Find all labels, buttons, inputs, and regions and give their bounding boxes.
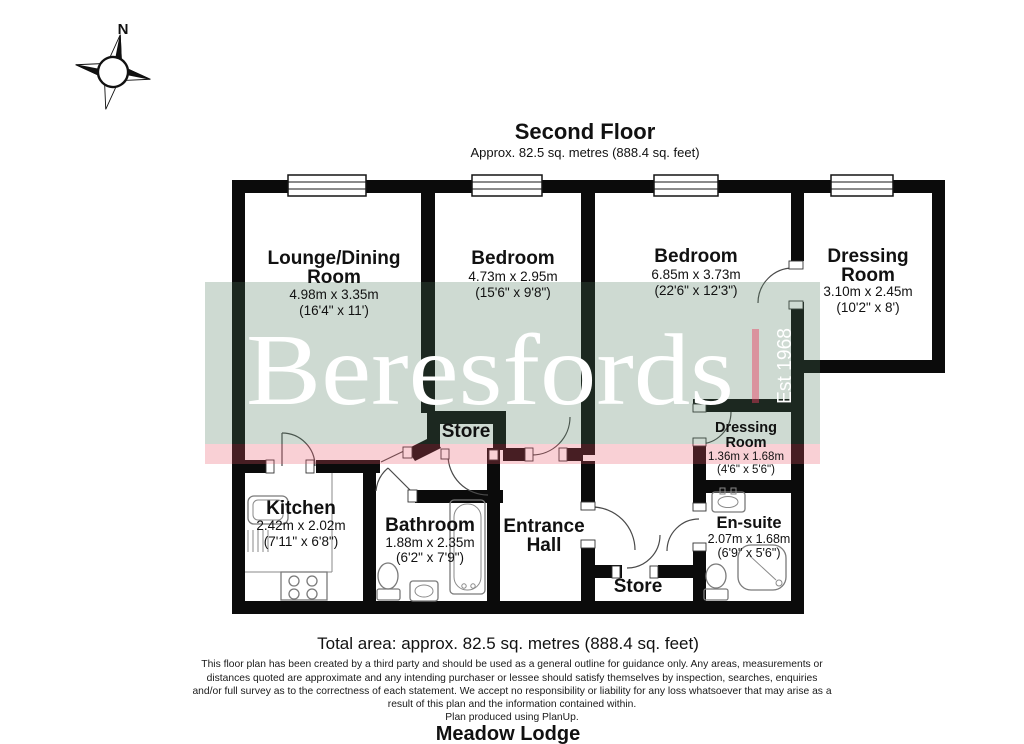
label-dressing-large-imperial: (10'2" x 8')	[836, 300, 899, 315]
label-dressing-large-name2: Room	[841, 265, 895, 286]
wall-bottom-exterior	[232, 601, 804, 614]
watermark-est-text: Est 1968	[774, 328, 796, 404]
label-bedroom2-name: Bedroom	[654, 246, 737, 267]
window-lounge	[288, 175, 366, 196]
disclaimer-line-3: and/or full survey as to the correctness…	[192, 686, 831, 697]
label-dressing-small-name1: Dressing	[715, 420, 777, 436]
label-dressing-small-metric: 1.36m x 1.68m	[708, 451, 784, 463]
label-bedroom2-imperial: (22'6" x 12'3")	[654, 283, 737, 298]
disclaimer-line-1: This floor plan has been created by a th…	[201, 659, 823, 670]
wall-bedroom2-dressing-upper	[791, 180, 804, 261]
bathroom-toilet	[378, 563, 398, 589]
kitchen-hob	[281, 572, 327, 600]
label-bathroom-imperial: (6'2" x 7'9")	[396, 550, 464, 565]
label-dressing-small-imperial: (4'6" x 5'6")	[717, 464, 775, 476]
disclaimer-line-2: distances quoted are approximate and any…	[207, 673, 818, 684]
label-ensuite-imperial: (6'9" x 5'6")	[718, 546, 781, 560]
disclaimer-line-4: result of this plan and the information …	[388, 699, 636, 710]
label-lounge-metric: 4.98m x 3.35m	[289, 287, 378, 302]
watermark-pink-bar	[752, 329, 759, 403]
wall-store-lower-left	[581, 578, 595, 604]
window-dressing-large	[831, 175, 893, 196]
label-kitchen-metric: 2.42m x 2.02m	[256, 518, 345, 533]
label-hall-name2: Hall	[527, 535, 562, 556]
label-bedroom1-name: Bedroom	[471, 248, 554, 269]
compass-circle	[95, 54, 130, 89]
label-dressing-large-metric: 3.10m x 2.45m	[823, 284, 912, 299]
label-store-lower: Store	[614, 576, 663, 597]
label-lounge-name2: Room	[307, 267, 361, 288]
disclaimer: This floor plan has been created by a th…	[192, 659, 831, 723]
label-dressing-large-name1: Dressing	[827, 246, 908, 267]
door-arc-store-lower	[627, 535, 660, 568]
total-area-text: Total area: approx. 82.5 sq. metres (888…	[317, 634, 699, 653]
label-lounge-imperial: (16'4" x 11')	[299, 303, 369, 318]
label-bathroom-metric: 1.88m x 2.35m	[385, 535, 474, 550]
wall-right-upper-exterior	[932, 180, 945, 373]
door-arc-bedroom2-hall	[592, 507, 635, 550]
label-ensuite-metric: 2.07m x 1.68m	[708, 532, 791, 546]
ensuite-toilet	[706, 564, 726, 588]
label-store-upper: Store	[442, 421, 491, 442]
page-title: Second Floor	[515, 119, 656, 144]
label-bedroom1-metric: 4.73m x 2.95m	[468, 269, 557, 284]
floorplan-canvas: Beresfords Est 1968 N Second Floor Appro…	[0, 0, 1024, 744]
wall-kitchen-bathroom-divider	[363, 460, 376, 614]
label-ensuite-name: En-suite	[716, 514, 781, 532]
door-leaf-bathroom	[388, 468, 412, 492]
wall-dressing-ensuite-divider	[706, 480, 791, 493]
label-hall-name1: Entrance	[503, 516, 584, 537]
label-lounge-name1: Lounge/Dining	[268, 248, 401, 269]
window-bedroom1	[472, 175, 542, 196]
bathroom-sink	[410, 581, 438, 601]
page-subtitle: Approx. 82.5 sq. metres (888.4 sq. feet)	[470, 145, 699, 160]
compass-north-label: N	[118, 21, 129, 38]
property-name: Meadow Lodge	[436, 723, 580, 744]
label-kitchen-imperial: (7'11" x 6'8")	[264, 534, 339, 549]
label-bathroom-name: Bathroom	[385, 515, 475, 536]
wall-bathroom-right	[487, 448, 500, 614]
ensuite-sink	[712, 492, 745, 512]
window-bedroom2	[654, 175, 718, 196]
compass-rose: N	[68, 21, 157, 117]
label-bedroom1-imperial: (15'6" x 9'8")	[475, 285, 551, 300]
label-kitchen-name: Kitchen	[266, 498, 336, 519]
label-dressing-small-name2: Room	[725, 435, 766, 451]
watermark-brand-text: Beresfords	[246, 314, 734, 427]
floorplan-page: Beresfords Est 1968 N Second Floor Appro…	[0, 0, 1024, 744]
label-bedroom2-metric: 6.85m x 3.73m	[651, 267, 740, 282]
disclaimer-line-5: Plan produced using PlanUp.	[445, 712, 578, 723]
